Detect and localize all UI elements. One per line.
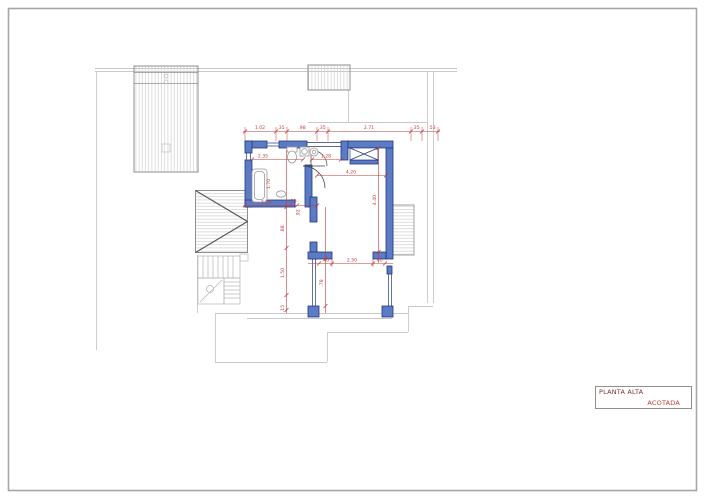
dimension-label: 4.20 [346, 170, 356, 176]
dimension-label: 2.35 [258, 154, 268, 160]
dimension-label: 1.02 [255, 125, 265, 131]
dimension-label: .40 [375, 258, 382, 264]
wardrobe [350, 148, 378, 160]
dimension-label: 2.71 [364, 125, 374, 131]
bidet-icon [277, 191, 286, 197]
window-glazing [247, 143, 392, 307]
title-block: PLANTA ALTA ACOTADA [595, 386, 692, 409]
dimension-label: .40 [322, 258, 329, 264]
dimension-label: 2.50 [347, 258, 357, 264]
dimension-label: .78 [319, 279, 325, 286]
dimension-label: .88 [280, 225, 286, 232]
dimension-label: .53 [428, 125, 435, 131]
dimension-label: .15 [280, 305, 286, 312]
dimension-label: .98 [298, 125, 305, 131]
staircase [198, 256, 240, 304]
dimension-label: .35 [412, 125, 419, 131]
sheet-border [9, 9, 697, 491]
plan-subtitle: ACOTADA [599, 399, 688, 407]
terrace-outline [198, 254, 409, 363]
floor-plan-canvas: 1.02.35.98.352.71.35.532.351.284.204.402… [0, 0, 705, 498]
dimension-label: .35 [277, 125, 284, 131]
dimension-label: 4.40 [372, 195, 378, 205]
plan-title: PLANTA ALTA [599, 388, 688, 396]
canopy-hatch [308, 65, 350, 90]
pergola-hatch [134, 66, 198, 172]
drawing-sheet: 1.02.35.98.352.71.35.532.351.284.204.402… [0, 0, 705, 498]
dimension-label: 1.70 [266, 179, 272, 189]
dimension-label: .35 [318, 125, 325, 131]
roof-hip [196, 191, 248, 253]
dimension-label: 1.50 [280, 268, 286, 278]
dimension-label: 2.79 [261, 200, 271, 206]
dimension-label: 1.28 [321, 154, 331, 160]
balcony-hatch [393, 205, 414, 255]
dimension-label: .15 [289, 199, 296, 205]
dimension-label: .92 [296, 209, 302, 216]
walls [245, 141, 393, 317]
